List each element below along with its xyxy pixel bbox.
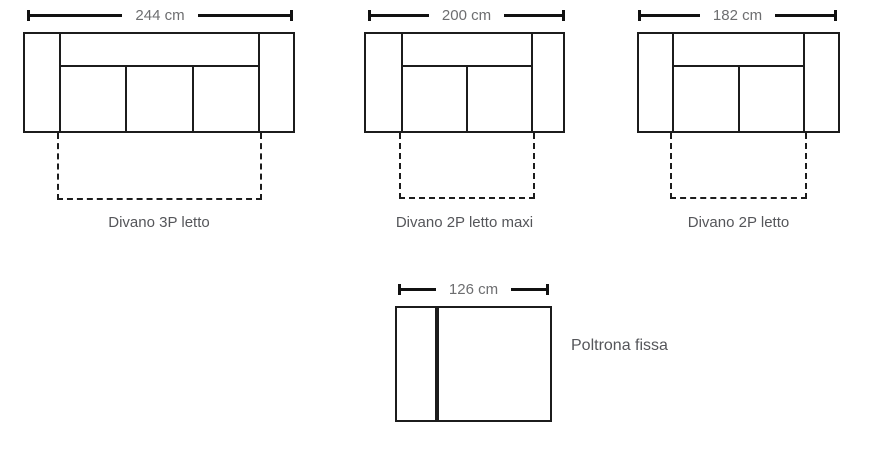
dimension-indicator: 126 cm	[398, 284, 549, 295]
seat-area	[59, 34, 260, 131]
seat-cushion	[674, 67, 738, 131]
seat-area	[401, 34, 533, 131]
seat-cushion	[403, 67, 466, 131]
armchair-outline-top-view	[395, 306, 552, 422]
dimension-value: 200 cm	[429, 10, 504, 21]
seat-area	[435, 308, 439, 420]
sofa-outline-top-view	[364, 32, 565, 133]
dimension-indicator: 200 cm	[368, 10, 565, 21]
item-label: Divano 2P letto	[637, 214, 840, 232]
backrest	[403, 34, 531, 67]
seat-cushion	[61, 67, 125, 131]
dimension-line-right	[504, 14, 562, 17]
dimension-line-right	[198, 14, 290, 17]
seat-cushion	[192, 67, 258, 131]
seat-cushions	[61, 67, 258, 131]
dimension-indicator: 244 cm	[27, 10, 293, 21]
dimension-line-left	[641, 14, 700, 17]
dimension-right-tick	[546, 284, 549, 295]
furniture-dimension-diagram: 244 cm Divano 3P letto 200 cm	[0, 0, 870, 455]
item-label: Divano 2P letto maxi	[364, 214, 565, 232]
dimension-value: 244 cm	[122, 10, 197, 21]
bed-extension-dashed-outline	[399, 133, 535, 199]
dimension-right-tick	[834, 10, 837, 21]
dimension-line-right	[511, 288, 546, 291]
seat-cushion	[125, 67, 191, 131]
seat-cushions	[674, 67, 803, 131]
item-label: Divano 3P letto	[23, 214, 295, 232]
figure-divano-2p-letto-maxi: 200 cm Divano 2P letto maxi	[364, 0, 565, 240]
figure-poltrona-fissa: 126 cm Poltrona fissa	[395, 280, 695, 455]
seat-area	[672, 34, 805, 131]
backrest	[674, 34, 803, 67]
dimension-value: 126 cm	[436, 284, 511, 295]
figure-divano-3p-letto: 244 cm Divano 3P letto	[23, 0, 295, 240]
seat-cushions	[403, 67, 531, 131]
dimension-right-tick	[290, 10, 293, 21]
seat-cushion	[466, 67, 531, 131]
dimension-value: 182 cm	[700, 10, 775, 21]
sofa-outline-top-view	[23, 32, 295, 133]
bed-extension-dashed-outline	[670, 133, 807, 199]
item-label: Poltrona fissa	[571, 337, 668, 355]
bed-extension-dashed-outline	[57, 133, 262, 200]
seat-cushion	[738, 67, 804, 131]
dimension-line-left	[401, 288, 436, 291]
dimension-line-right	[775, 14, 834, 17]
dimension-line-left	[30, 14, 122, 17]
dimension-right-tick	[562, 10, 565, 21]
dimension-indicator: 182 cm	[638, 10, 837, 21]
sofa-outline-top-view	[637, 32, 840, 133]
dimension-line-left	[371, 14, 429, 17]
figure-divano-2p-letto: 182 cm Divano 2P letto	[637, 0, 840, 240]
backrest	[61, 34, 258, 67]
